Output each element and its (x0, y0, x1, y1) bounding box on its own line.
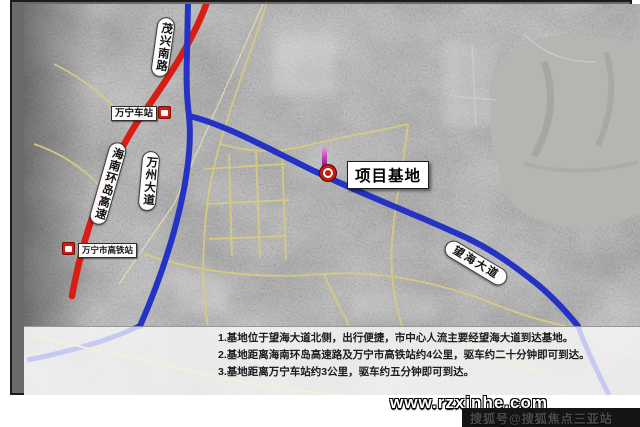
hsr-station-icon (62, 242, 75, 255)
water-body (490, 35, 640, 227)
wanning-station-label: 万宁车站 (111, 106, 157, 121)
note-line-1: 1.基地位于望海大道北侧，出行便捷，市中心人流主要经望海大道到达基地。 (218, 330, 558, 347)
location-notes: 1.基地位于望海大道北侧，出行便捷，市中心人流主要经望海大道到达基地。 2.基地… (218, 330, 558, 381)
shadow-overlay (24, 4, 96, 326)
note-line-2: 2.基地距离海南环岛高速路及万宁市高铁站约4公里，驱车约二十分钟即可到达。 (218, 347, 558, 364)
map-screenshot: 茂兴南路 海南环岛高速 万州大道 望海大道 万宁车站 万宁市高铁站 项目基地 1… (0, 0, 640, 427)
target-icon (320, 165, 336, 181)
watermark-credit: 搜狐号@搜狐焦点三亚站 (470, 410, 613, 427)
purple-flag-marker (322, 147, 327, 167)
note-line-3: 3.基地距离万宁车站约3公里，驱车约五分钟即可到达。 (218, 364, 558, 381)
strip-divider (24, 326, 640, 327)
project-base-label: 项目基地 (347, 161, 429, 189)
watermark-bar: 搜狐号@搜狐焦点三亚站 (462, 408, 640, 427)
hsr-station-label: 万宁市高铁站 (78, 243, 137, 258)
wanning-station-icon (158, 106, 171, 119)
